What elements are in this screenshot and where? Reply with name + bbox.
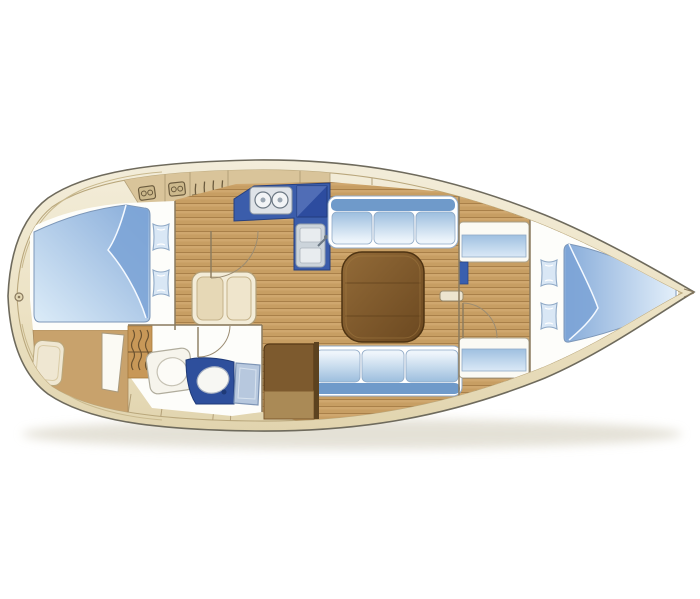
settee-cushion — [332, 212, 372, 244]
chart-table — [264, 342, 319, 419]
port-settee — [328, 196, 458, 248]
deck-hatch-icon — [168, 182, 185, 197]
forward-locker-starboard — [459, 338, 529, 378]
aft-berth-pillow-2 — [153, 270, 169, 296]
salon-table — [342, 252, 424, 342]
forward-locker-port — [459, 222, 529, 262]
stern-fitting-pin — [18, 296, 21, 299]
galley-sink — [296, 224, 328, 267]
companionway-steps — [192, 272, 256, 325]
starboard-settee — [312, 346, 462, 396]
vanity-faucet — [222, 390, 227, 395]
settee-cushion — [316, 350, 360, 382]
aft-berth-pillow-1 — [153, 224, 169, 250]
settee-cushion — [374, 212, 414, 244]
v-berth-pillow-1 — [541, 260, 557, 286]
settee-cushion — [406, 350, 458, 382]
yacht-floor-plan-page — [0, 0, 700, 599]
settee-cushion — [416, 212, 455, 244]
yacht-floor-plan — [0, 0, 700, 599]
heater-unit — [459, 262, 468, 284]
v-berth-pillow-2 — [541, 303, 557, 329]
settee-cushion — [362, 350, 404, 382]
deck-hatch-icon — [138, 185, 156, 200]
stove — [250, 187, 292, 214]
icebox — [297, 186, 327, 217]
